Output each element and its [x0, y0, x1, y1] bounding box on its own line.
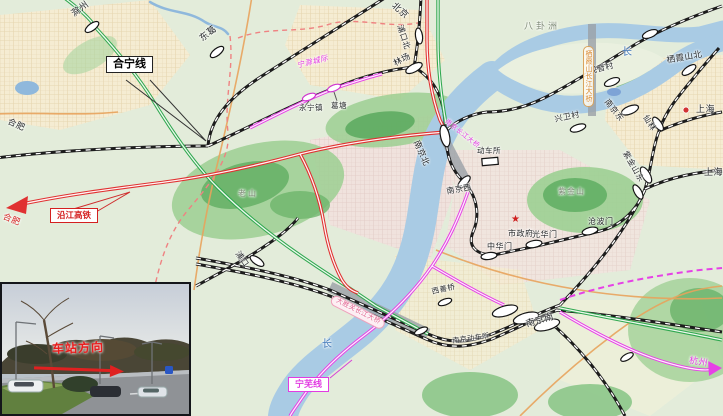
- station-label-guanghuamen: 光华门: [532, 231, 558, 239]
- line-callout-yanjiang: 沿江高铁: [50, 208, 98, 223]
- geo-label-laoshan: 老山: [238, 190, 258, 198]
- station-label-dongchesuo: 动车所: [477, 147, 501, 155]
- temple-marker-icon: [683, 107, 689, 113]
- station-label-yongningzhen: 永宁镇: [299, 104, 323, 112]
- geo-label-shizhengfu: 市政府: [508, 230, 534, 238]
- lake-ne: [607, 88, 621, 96]
- geo-label-zijinshan: 紫金山: [558, 188, 585, 196]
- river-label-chang-north: 长: [622, 48, 633, 58]
- direction-label-shanghai-a: 上海: [696, 105, 715, 114]
- railway-map-figure: 滁州 东葛 北京 浦口北 林场 宁滁城际 永宁镇 葛塘 合宁线 合肥 沿江高铁 …: [0, 0, 723, 416]
- bridge-label-qixiashan: 栖霞山长江大桥: [583, 46, 594, 107]
- geo-label-baguazhou: 八卦洲: [524, 22, 560, 31]
- station-label-cangbomen: 沧波门: [588, 218, 614, 226]
- direction-label-shanghai-b: 上海: [704, 168, 723, 177]
- photo-inset: 车站方向: [0, 282, 191, 416]
- line-callout-ningwu: 宁芜线: [288, 377, 329, 392]
- road-sign: [165, 366, 173, 374]
- line-callout-heningxian: 合宁线: [106, 56, 153, 73]
- government-star-icon: ★: [511, 215, 520, 225]
- station-label-getang: 葛塘: [331, 102, 347, 110]
- station-label-zhonghuamen: 中华门: [487, 243, 513, 251]
- river-label-chang-south: 长: [322, 340, 333, 350]
- lake-nw: [15, 81, 39, 95]
- inset-caption: 车站方向: [52, 338, 105, 357]
